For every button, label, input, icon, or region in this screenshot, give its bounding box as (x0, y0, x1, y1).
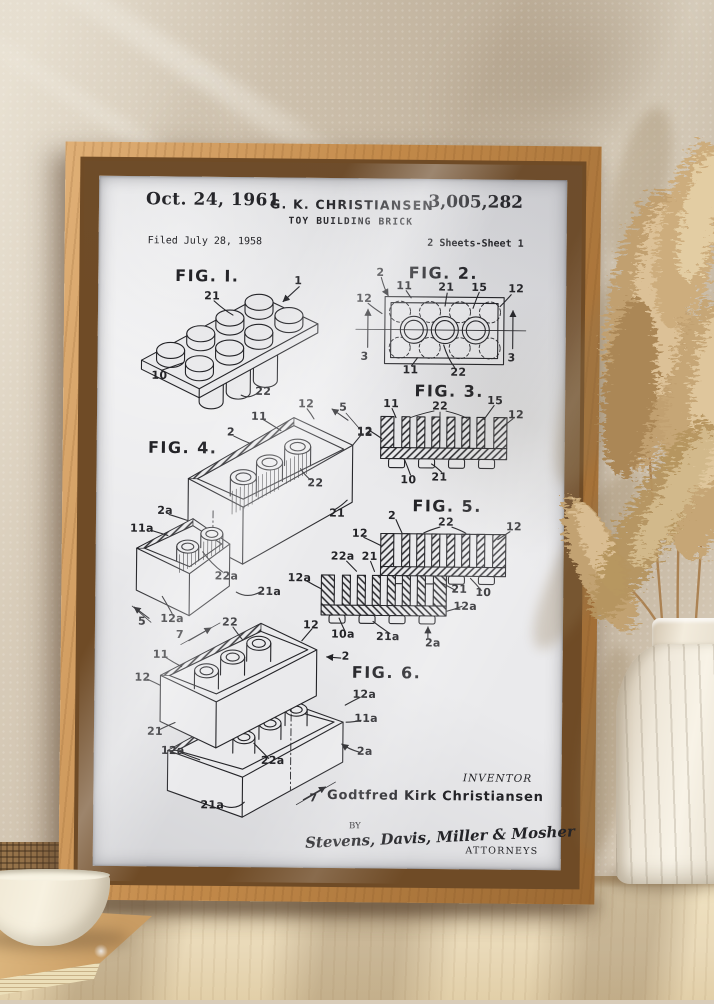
vase (616, 644, 714, 884)
pampas-grass (0, 0, 714, 1000)
scene-photo: { "theme":{ "wall":"#d8ccb9","wood":"#c2… (0, 0, 714, 1000)
